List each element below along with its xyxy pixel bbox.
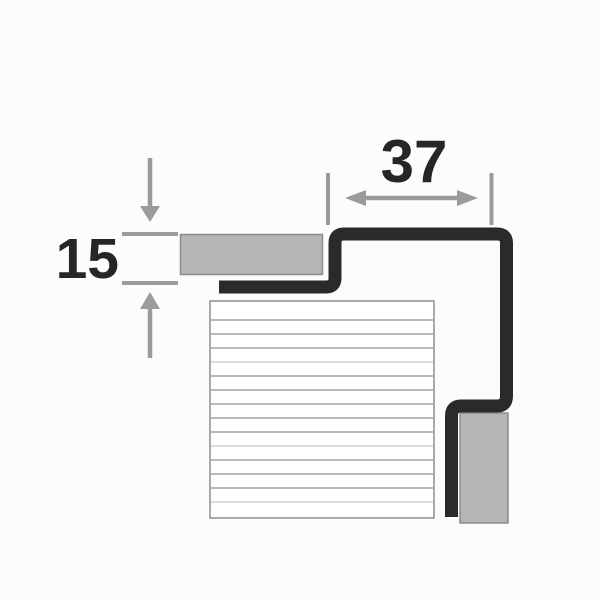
width-dim-arrowhead-left-icon (345, 190, 366, 206)
right-tile (460, 413, 508, 523)
width-dimension-label: 37 (381, 128, 448, 195)
height-dimension-label: 15 (56, 227, 119, 291)
height-dim-arrowhead-up-icon (140, 292, 160, 309)
height-dimension: 15 (56, 158, 178, 358)
width-dim-arrowhead-right-icon (457, 190, 478, 206)
height-dim-arrowhead-down-icon (140, 206, 160, 222)
diagram-canvas: 37 15 (0, 0, 600, 600)
profile-diagram: 37 15 (0, 0, 600, 600)
top-tile (181, 235, 323, 275)
hatched-substrate (210, 301, 434, 518)
width-dimension: 37 (328, 128, 492, 225)
